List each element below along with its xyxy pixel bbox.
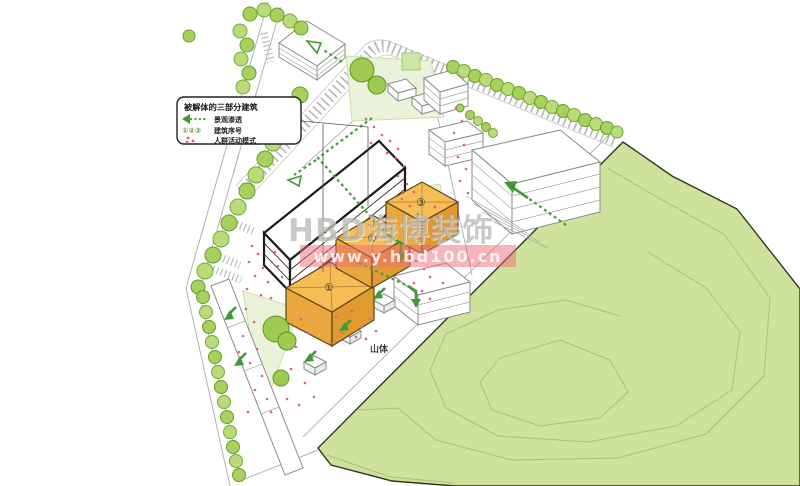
watermark-band: www.y.hbd100.cn (300, 245, 516, 267)
svg-text:建筑序号: 建筑序号 (214, 126, 242, 135)
watermark-url: www.y.hbd100.cn (313, 247, 502, 266)
hedge-square (402, 53, 420, 70)
legend: 被解体的三部分建筑 景观渗透 ①②③ 建筑序号 人群活动模式 (177, 97, 301, 145)
svg-text:景观渗透: 景观渗透 (213, 115, 242, 124)
building-top-slab (279, 21, 345, 80)
building-number-1: ① (324, 282, 333, 294)
architecture-diagram: 山体 (0, 0, 800, 486)
mountain-label: 山体 (370, 343, 389, 355)
svg-text:人群活动模式: 人群活动模式 (214, 136, 256, 145)
legend-title: 被解体的三部分建筑 (183, 102, 259, 112)
circled-numbers-icon: ①②③ (182, 126, 201, 135)
watermark-brand: HBD海博装饰 (288, 205, 494, 250)
